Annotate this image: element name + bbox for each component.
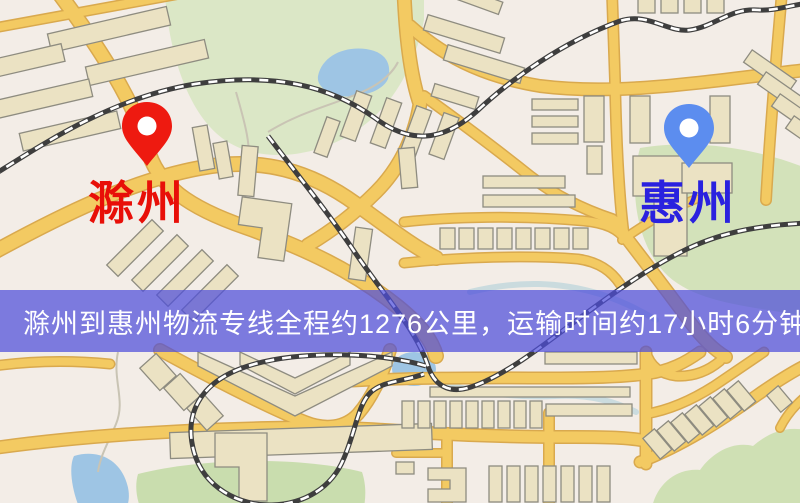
destination-city-label: 惠州 (639, 178, 737, 229)
route-info-banner: 滁州到惠州物流专线全程约1276公里，运输时间约17小时6分钟. (0, 290, 800, 352)
logistics-route-map: 滁州 惠州 滁州到惠州物流专线全程约1276公里，运输时间约17小时6分钟. (0, 0, 800, 503)
route-info-text: 滁州到惠州物流专线全程约1276公里，运输时间约17小时6分钟. (23, 302, 800, 341)
map-image: 滁州 惠州 (0, 0, 800, 503)
origin-city-label: 滁州 (88, 178, 186, 229)
